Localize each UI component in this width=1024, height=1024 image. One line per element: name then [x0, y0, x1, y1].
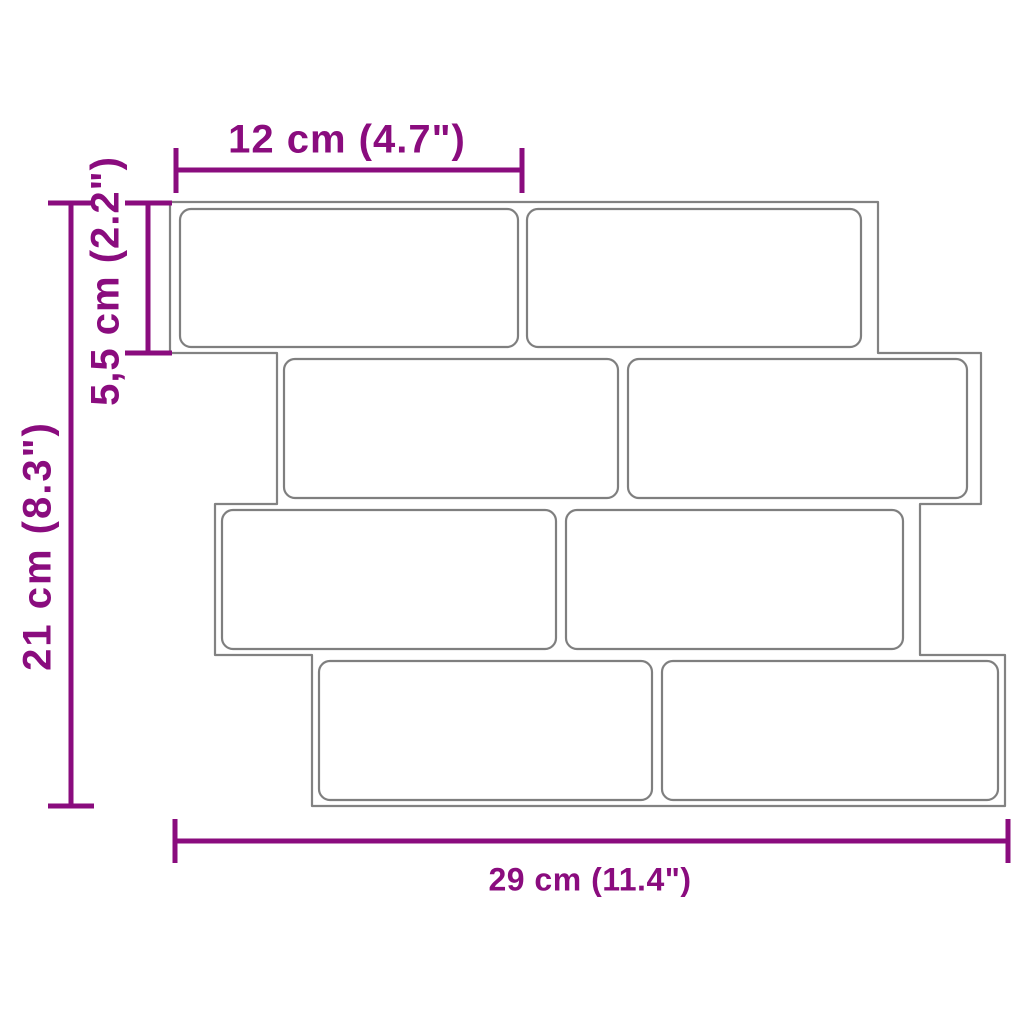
brick-height-dimension	[125, 203, 172, 353]
tile-brick	[180, 209, 518, 347]
tile-bricks	[180, 209, 998, 800]
tile-brick	[319, 661, 652, 800]
tile-brick	[628, 359, 967, 498]
tile-brick	[662, 661, 998, 800]
brick-height-label: 5,5 cm (2.2")	[84, 156, 129, 406]
tile-brick	[566, 510, 903, 649]
tile-brick	[222, 510, 556, 649]
panel-width-dimension	[175, 819, 1008, 863]
panel-height-label: 21 cm (8.3")	[16, 421, 61, 671]
tile-brick	[284, 359, 618, 498]
dimension-diagram: 12 cm (4.7") 5,5 cm (2.2") 21 cm (8.3") …	[0, 0, 1024, 1024]
tile-brick	[527, 209, 861, 347]
brick-width-label: 12 cm (4.7")	[228, 118, 466, 163]
panel-width-label: 29 cm (11.4")	[488, 862, 691, 899]
